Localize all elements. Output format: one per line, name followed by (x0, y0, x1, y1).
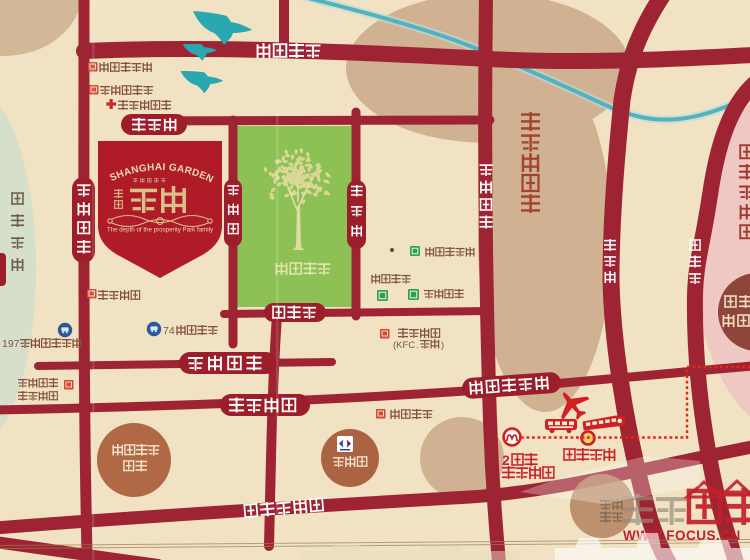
svg-text:(KFC: (KFC (393, 340, 415, 351)
svg-text:): ) (441, 340, 444, 351)
svg-text:.: . (416, 340, 419, 351)
svg-text:197: 197 (2, 338, 20, 350)
svg-text:The depth of the prosperity Pa: The depth of the prosperity Park family (107, 227, 214, 234)
svg-text:74: 74 (163, 325, 175, 337)
svg-text:2: 2 (502, 452, 510, 468)
